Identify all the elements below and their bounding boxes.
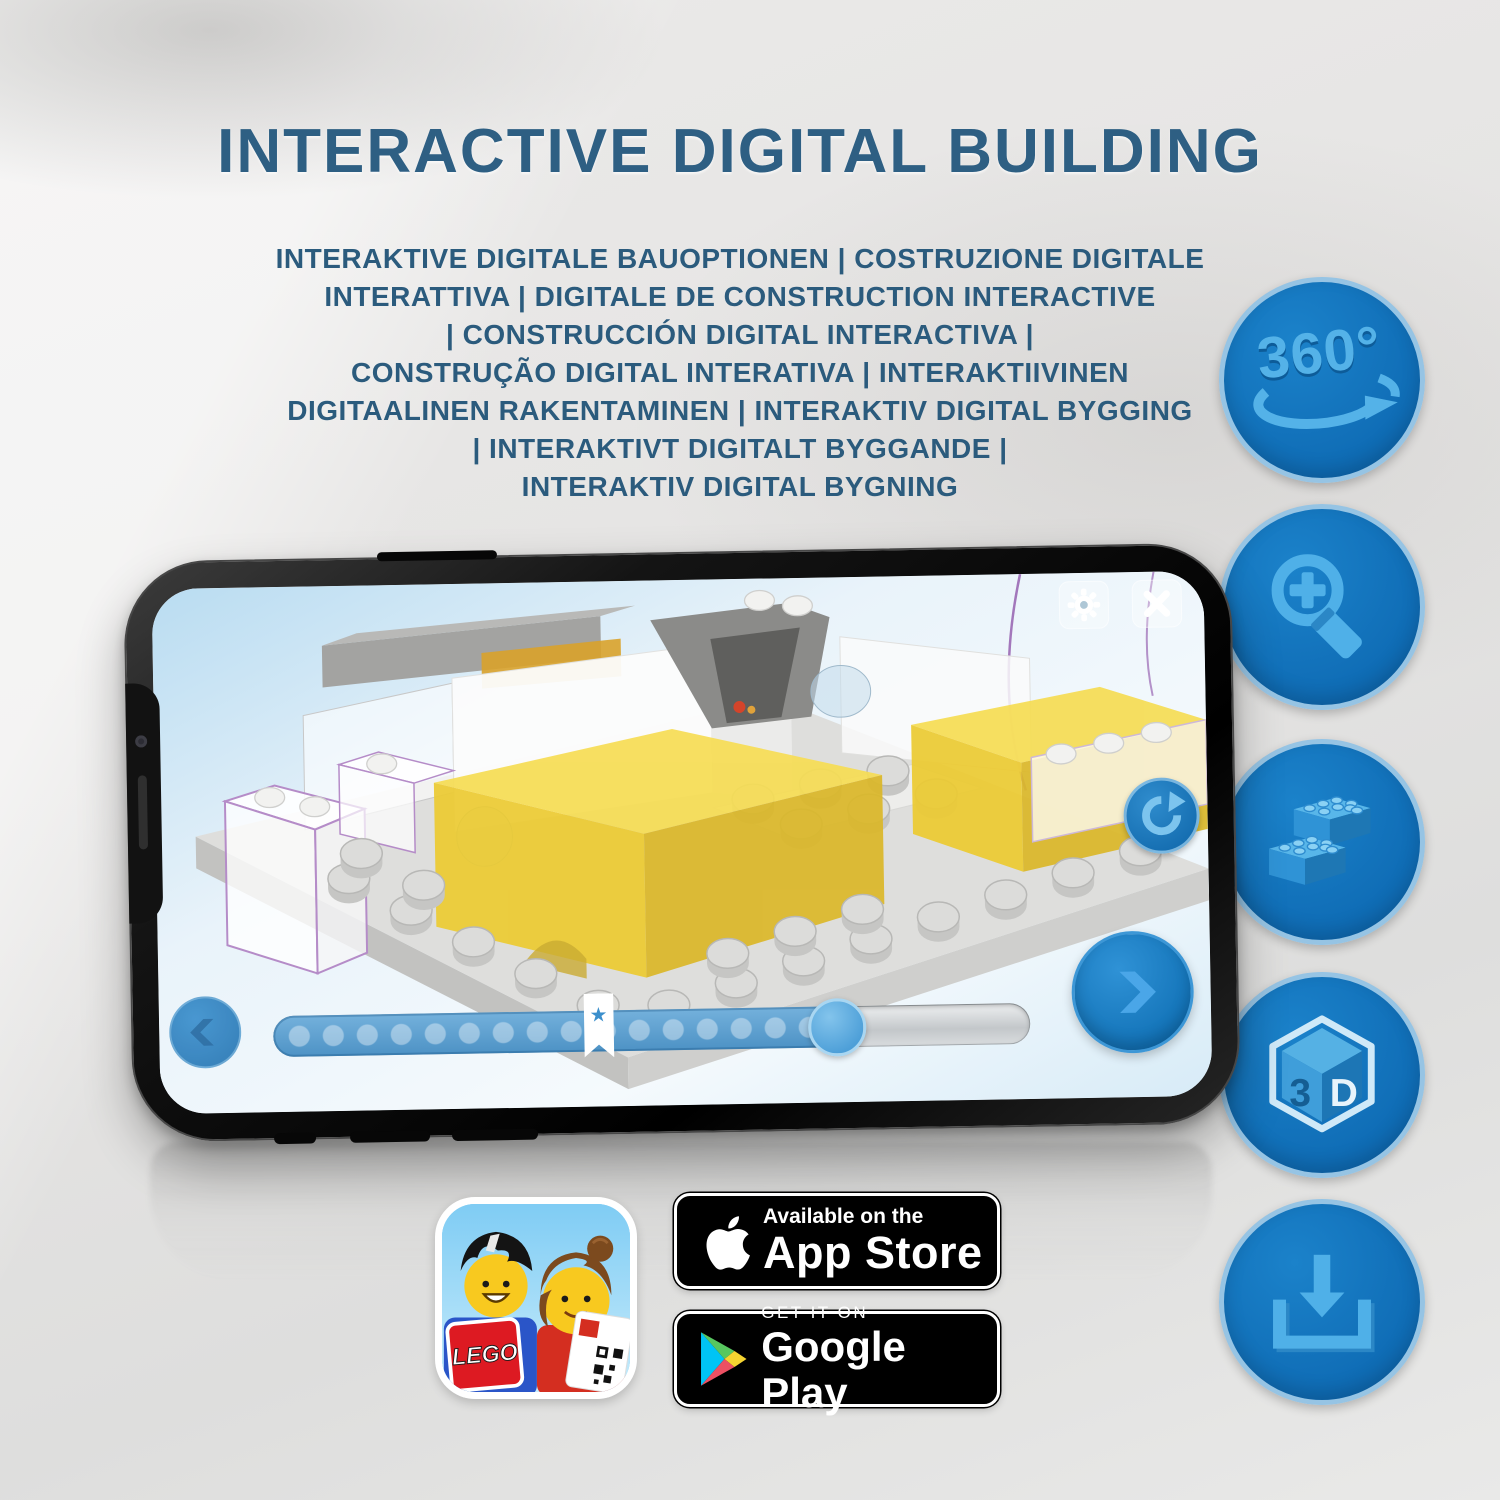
subtitle-line: INTERAKTIV DIGITAL BYGNING <box>150 468 1330 506</box>
feature-bricks <box>1219 739 1425 945</box>
feature-download <box>1219 1199 1425 1405</box>
phone-side-button <box>377 550 497 561</box>
phone-side-button <box>452 1129 538 1141</box>
subtitle-line: CONSTRUÇÃO DIGITAL INTERATIVA | INTERAKT… <box>150 354 1330 392</box>
close-icon <box>1141 587 1174 620</box>
phone-side-button <box>350 1130 430 1142</box>
cube-3-label: 3 <box>1289 1072 1311 1115</box>
subtitle-line: INTERATTIVA | DIGITALE DE CONSTRUCTION I… <box>150 278 1330 316</box>
phone-mockup: ★ <box>123 542 1241 1142</box>
subtitle-line: | CONSTRUCCIÓN DIGITAL INTERACTIVA | <box>150 316 1330 354</box>
settings-button[interactable] <box>1059 581 1110 630</box>
feature-3d-view: 3 D <box>1219 972 1425 1178</box>
camera-notch <box>125 683 163 924</box>
app-store-label: App Store <box>763 1229 983 1277</box>
cube-d-label: D <box>1330 1072 1358 1115</box>
chevron-right-icon <box>1105 961 1160 1024</box>
close-button[interactable] <box>1131 579 1182 628</box>
subtitle-line: DIGITAALINEN RAKENTAMINEN | INTERAKTIV D… <box>150 392 1330 430</box>
feature-zoom-in <box>1219 504 1425 710</box>
subtitle-line: | INTERAKTIVT DIGITALT BYGGANDE | <box>150 430 1330 468</box>
app-store-tagline: Available on the <box>763 1205 983 1229</box>
app-screen: ★ <box>151 571 1212 1114</box>
lego-app-art: LEGO <box>442 1204 630 1392</box>
download-icon <box>1263 1243 1381 1361</box>
google-play-tagline: GET IT ON <box>761 1302 997 1324</box>
front-camera <box>135 735 147 747</box>
app-store-badge[interactable]: Available on the App Store <box>674 1193 1000 1289</box>
google-play-badge[interactable]: GET IT ON Google Play <box>674 1311 1000 1407</box>
google-play-label: Google Play <box>761 1324 997 1416</box>
feature-360-rotation: 360° <box>1219 277 1425 483</box>
bookmark-star-icon: ★ <box>589 1005 607 1025</box>
lego-bricks-icon <box>1260 780 1384 904</box>
lego-app-icon: LEGO <box>435 1197 637 1399</box>
rotate-icon <box>1135 789 1188 842</box>
google-play-icon <box>693 1325 753 1393</box>
page-title: INTERACTIVE DIGITAL BUILDING <box>0 116 1480 187</box>
subtitle-line: INTERAKTIVE DIGITALE BAUOPTIONEN | COSTR… <box>150 240 1330 278</box>
apple-logo-icon <box>691 1205 757 1277</box>
phone-side-button <box>274 1132 316 1144</box>
chevron-left-icon <box>188 1012 223 1053</box>
multilingual-subtitle: INTERAKTIVE DIGITALE BAUOPTIONEN | COSTR… <box>150 240 1330 506</box>
speaker-slot <box>138 775 148 849</box>
promo-page: INTERACTIVE DIGITAL BUILDING INTERAKTIVE… <box>0 0 1500 1500</box>
gear-icon <box>1067 588 1102 623</box>
3d-cube-icon: 3 D <box>1259 1012 1385 1138</box>
magnifier-plus-icon <box>1262 547 1382 667</box>
